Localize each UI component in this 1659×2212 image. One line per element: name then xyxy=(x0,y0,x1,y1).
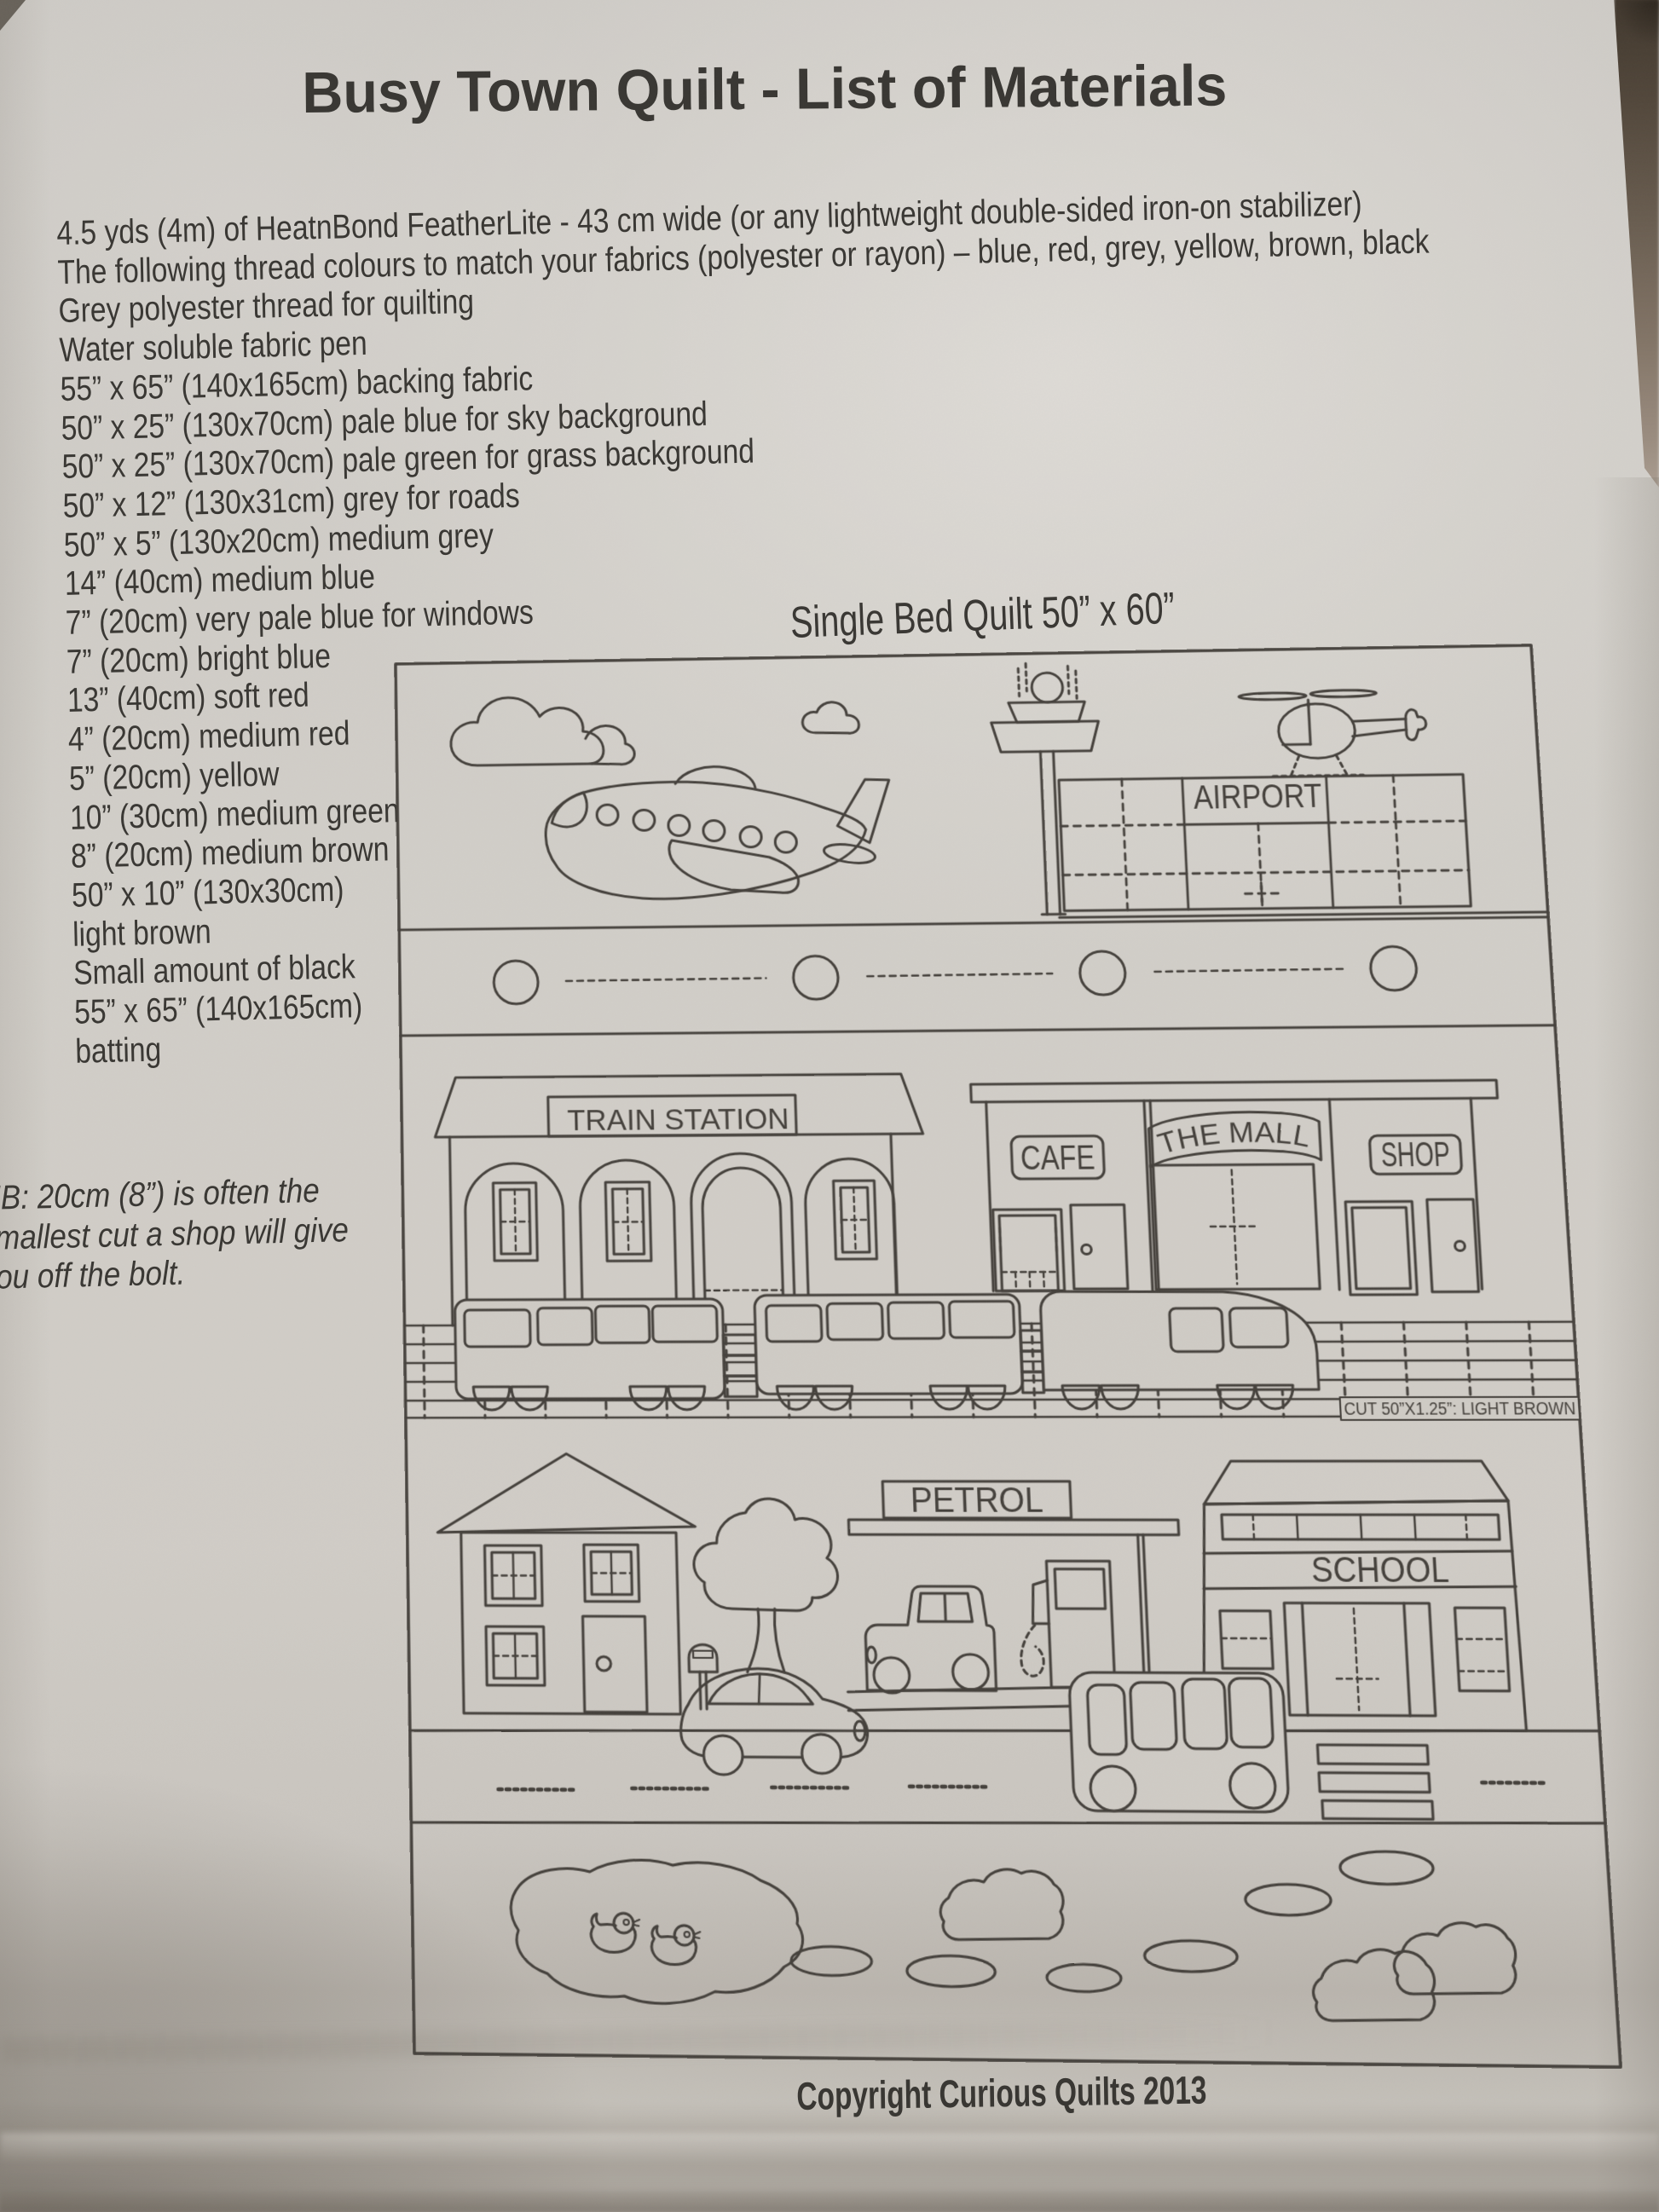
svg-text:THE MALL: THE MALL xyxy=(1153,1115,1315,1160)
svg-text:SCHOOL: SCHOOL xyxy=(1310,1550,1450,1589)
svg-text:TRAIN STATION: TRAIN STATION xyxy=(567,1102,789,1138)
svg-text:AIRPORT: AIRPORT xyxy=(1193,777,1323,817)
svg-text:PETROL: PETROL xyxy=(910,1481,1043,1520)
svg-text:CUT 50”X1.25”: LIGHT BROWN: CUT 50”X1.25”: LIGHT BROWN xyxy=(1344,1399,1576,1419)
svg-text:CAFE: CAFE xyxy=(1020,1139,1095,1177)
svg-text:SHOP: SHOP xyxy=(1380,1135,1452,1174)
